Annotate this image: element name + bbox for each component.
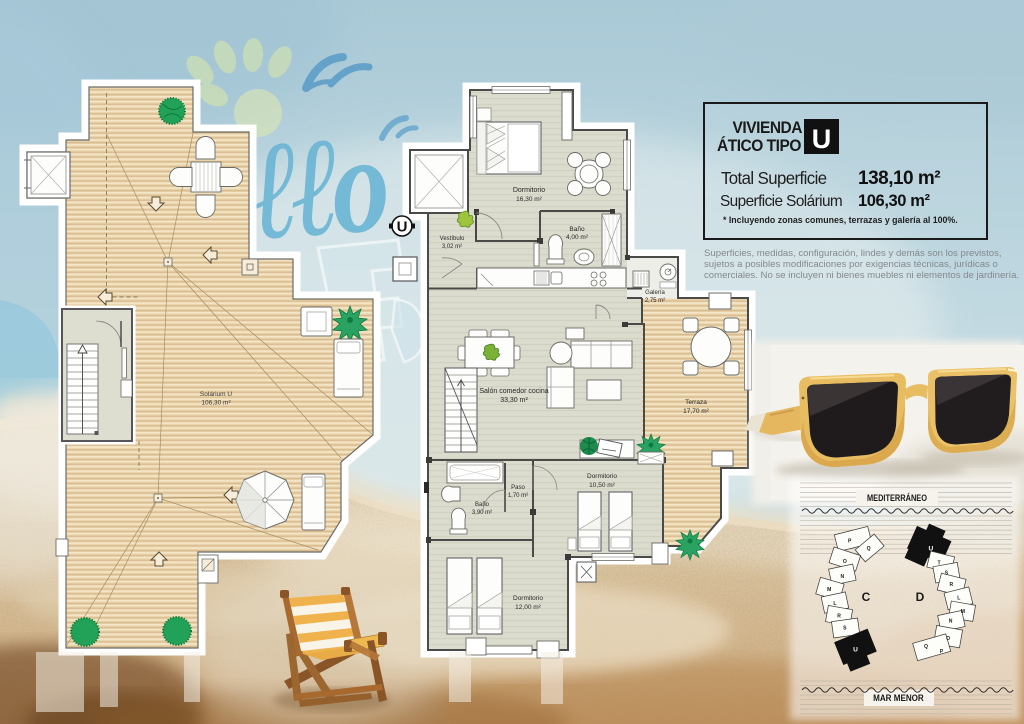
svg-text:Superficies, medidas, configur: Superficies, medidas, configuración, lin… [704,248,1002,259]
svg-text:17,70 m²: 17,70 m² [683,408,709,415]
svg-text:Galería: Galería [645,290,665,296]
svg-text:U: U [853,647,858,654]
svg-text:Baño: Baño [569,226,585,233]
svg-text:MAR MENOR: MAR MENOR [873,692,924,703]
svg-text:L: L [957,596,960,602]
svg-text:10,50 m²: 10,50 m² [589,482,615,489]
svg-text:VIVIENDA: VIVIENDA [733,120,803,138]
svg-text:Paso: Paso [511,485,525,491]
svg-text:Dormitorio: Dormitorio [513,187,545,194]
svg-text:R: R [950,582,954,588]
svg-text:33,30 m²: 33,30 m² [500,397,528,404]
svg-text:Dormitorio: Dormitorio [587,473,617,480]
svg-text:Total Superficie: Total Superficie [721,168,827,188]
svg-text:138,10 m²: 138,10 m² [858,168,940,189]
svg-text:16,30 m²: 16,30 m² [516,196,542,203]
svg-text:C: C [862,590,871,604]
svg-text:R: R [837,613,841,619]
svg-text:Baño: Baño [475,502,490,508]
svg-text:12,00 m²: 12,00 m² [515,604,541,611]
svg-text:2,75 m²: 2,75 m² [645,298,665,304]
svg-text:comerciales. No se incluyen ni: comerciales. No se incluyen ni bienes mu… [704,270,1019,281]
svg-text:M: M [961,609,965,615]
svg-text:L: L [833,601,836,607]
svg-text:Q: Q [867,546,871,552]
svg-text:Solárium U: Solárium U [200,391,232,398]
svg-text:Q: Q [924,644,928,650]
svg-text:Vestíbulo: Vestíbulo [440,236,465,242]
svg-text:3,90 m²: 3,90 m² [472,510,492,516]
svg-text:N: N [841,574,845,580]
svg-text:M: M [827,587,831,593]
svg-text:* Incluyendo zonas comunes, te: * Incluyendo zonas comunes, terrazas y g… [723,215,958,225]
svg-text:ÁTICO TIPO: ÁTICO TIPO [717,136,801,156]
svg-text:U: U [812,124,832,154]
svg-text:O: O [843,559,847,565]
svg-text:D: D [916,590,925,604]
svg-text:Superficie Solárium: Superficie Solárium [720,193,843,210]
svg-text:Terraza: Terraza [685,399,707,406]
svg-text:N: N [949,619,953,625]
svg-text:1,70 m²: 1,70 m² [508,493,528,499]
svg-text:Salón comedor cocina: Salón comedor cocina [479,388,548,395]
svg-text:3,02 m²: 3,02 m² [442,244,462,250]
svg-text:4,00 m²: 4,00 m² [566,234,589,241]
svg-text:106,30 m²: 106,30 m² [858,192,931,210]
svg-text:106,30 m²: 106,30 m² [201,400,231,407]
svg-text:O: O [946,636,950,642]
svg-text:sujetos a posibles modificacio: sujetos a posibles modificaciones por ex… [704,259,998,270]
svg-text:MEDITERRÁNEO: MEDITERRÁNEO [867,492,927,503]
svg-text:U: U [397,219,408,236]
svg-text:Dormitorio: Dormitorio [513,595,543,602]
